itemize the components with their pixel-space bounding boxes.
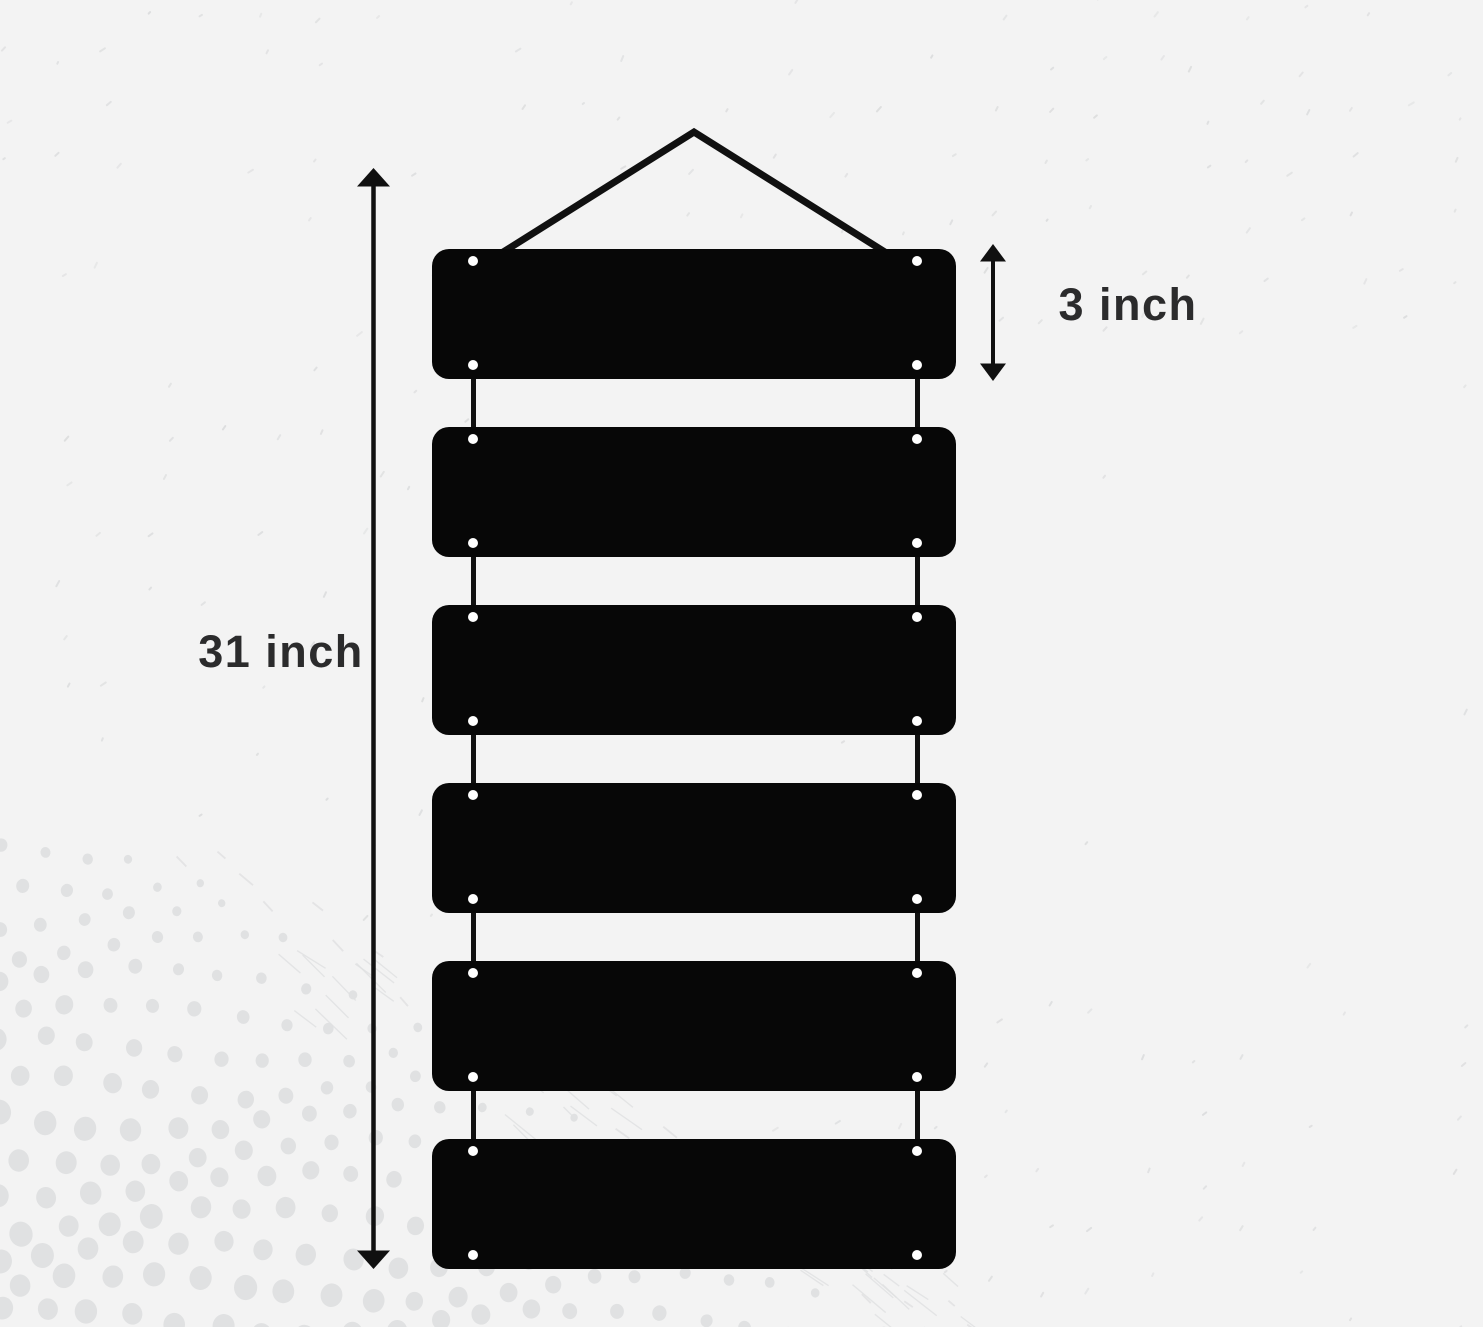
plank-hole: [912, 894, 922, 904]
sign-plank-3: [432, 605, 956, 735]
plank-hole: [468, 716, 478, 726]
product-dimension-diagram: 31 inch 3 inch: [0, 0, 1483, 1327]
plank-hole: [912, 716, 922, 726]
plank-hole: [912, 1072, 922, 1082]
plank-hole: [468, 1146, 478, 1156]
plank-hole: [468, 1250, 478, 1260]
arrowhead-up-icon: [357, 168, 390, 187]
plank-hole: [468, 968, 478, 978]
plank-hole: [468, 538, 478, 548]
sign-plank-4: [432, 783, 956, 913]
plank-hole: [468, 894, 478, 904]
sign-plank-2: [432, 427, 956, 557]
plank-hole: [468, 360, 478, 370]
plank-hole: [912, 1146, 922, 1156]
plank-hole: [468, 434, 478, 444]
plank-hole: [468, 790, 478, 800]
plank-hole: [468, 612, 478, 622]
plank-hole: [912, 968, 922, 978]
plank-height-dimension-label: 3 inch: [1043, 282, 1213, 327]
height-dimension-arrow: [357, 168, 390, 1269]
plank-hole: [468, 256, 478, 266]
plank-hole: [912, 256, 922, 266]
plank-hole: [912, 434, 922, 444]
arrowhead-down-icon: [980, 364, 1006, 382]
plank-hole: [912, 790, 922, 800]
hanging-rope: [500, 132, 888, 254]
plank-hole: [468, 1072, 478, 1082]
plank-hole: [912, 360, 922, 370]
height-dimension-label: 31 inch: [186, 629, 376, 674]
sign-plank-5: [432, 961, 956, 1091]
plank-height-dimension-arrow: [980, 244, 1006, 381]
arrowhead-up-icon: [980, 244, 1006, 262]
plank-hole: [912, 612, 922, 622]
arrowhead-down-icon: [357, 1251, 390, 1270]
plank-hole: [912, 538, 922, 548]
plank-hole: [912, 1250, 922, 1260]
sign-plank-6: [432, 1139, 956, 1269]
sign-plank-1: [432, 249, 956, 379]
